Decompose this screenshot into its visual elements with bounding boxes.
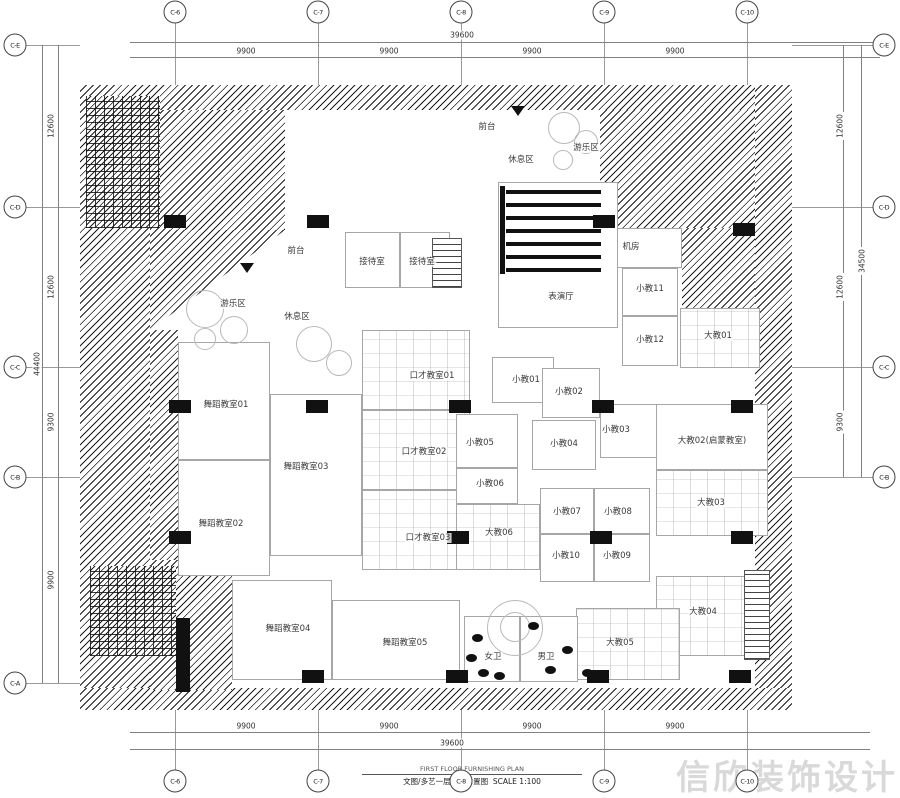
room-label: 小教09 — [602, 551, 632, 561]
grid-stem — [175, 710, 176, 770]
room-label: 表演厅 — [547, 292, 575, 302]
hatch-zone — [150, 110, 285, 230]
structure-core-block — [90, 566, 176, 656]
grid-bubble-bottom: C-9 — [593, 770, 616, 793]
dim-segment-top: 9900 — [663, 47, 686, 56]
room-label: 小教11 — [635, 284, 665, 294]
seating-bar — [506, 190, 601, 194]
room-label: 小教01 — [511, 375, 541, 385]
grid-stem — [747, 710, 748, 770]
room-label: 口才教室01 — [409, 371, 456, 381]
grid-bubble-top: C-9 — [593, 1, 616, 24]
decor-circle — [326, 350, 352, 376]
dim-segment-left: 9900 — [47, 568, 56, 591]
column-marker — [731, 531, 753, 544]
dim-total-bottom: 39600 — [438, 739, 466, 748]
room-label: 男卫 — [536, 652, 555, 662]
area-label: 游乐区 — [219, 299, 247, 309]
toilet-fixture — [494, 672, 505, 680]
dim-segment-bottom: 9900 — [234, 722, 257, 731]
room-label: 小教06 — [475, 479, 505, 489]
title-english: FIRST FLOOR FURNISHING PLAN — [362, 765, 582, 775]
room — [362, 490, 470, 570]
room-label: 口才教室03 — [405, 533, 452, 543]
grid-bubble-top: C-8 — [450, 1, 473, 24]
dim-segment-right: 12600 — [836, 112, 845, 140]
grid-bubble-top: C-7 — [307, 1, 330, 24]
hatch-zone — [80, 85, 792, 110]
column-marker — [169, 531, 191, 544]
area-label: 休息区 — [507, 155, 535, 165]
area-label: 游乐区 — [572, 143, 600, 153]
room-label: 舞蹈教室01 — [203, 400, 250, 410]
dim-segment-bottom: 9900 — [663, 722, 686, 731]
grid-bubble-right: C-C — [873, 356, 896, 379]
room — [362, 330, 470, 410]
dim-line — [130, 57, 880, 58]
dim-total-right: 34500 — [858, 247, 867, 275]
title-scale: SCALE 1:100 — [493, 777, 541, 786]
room-label: 大教01 — [703, 331, 733, 341]
column-marker — [446, 670, 468, 683]
room — [270, 394, 362, 556]
room-label: 舞蹈教室02 — [198, 519, 245, 529]
room-label: 小教03 — [601, 425, 631, 435]
grid-bubble-left: C-B — [4, 466, 27, 489]
room-label: 舞蹈教室05 — [382, 638, 429, 648]
entrance-arrow-icon — [511, 106, 525, 116]
column-marker — [302, 670, 324, 683]
room-label: 舞蹈教室04 — [265, 624, 312, 634]
dim-segment-left: 12600 — [47, 112, 56, 140]
hatch-zone — [600, 110, 755, 228]
room-label: 接待室 — [358, 257, 386, 267]
grid-stem — [604, 710, 605, 770]
grid-bubble-right: C-E — [873, 34, 896, 57]
grid-stem — [175, 23, 176, 85]
decor-circle — [553, 150, 573, 170]
room-label: 小教04 — [549, 439, 579, 449]
toilet-fixture — [478, 669, 489, 677]
toilet-fixture — [545, 666, 556, 674]
dim-line — [130, 749, 870, 750]
toilet-fixture — [466, 654, 477, 662]
grid-bubble-bottom: C-8 — [450, 770, 473, 793]
dim-total-left: 44400 — [33, 350, 42, 378]
dim-segment-left: 12600 — [47, 273, 56, 301]
decor-circle — [500, 612, 530, 642]
grid-bubble-right: C-B — [873, 466, 896, 489]
dim-segment-top: 9900 — [520, 47, 543, 56]
dim-segment-top: 9900 — [234, 47, 257, 56]
column-marker — [169, 400, 191, 413]
seating-bar — [506, 268, 601, 272]
toilet-fixture — [528, 622, 539, 630]
area-label: 前台 — [286, 246, 305, 256]
dim-total-top: 39600 — [448, 31, 476, 40]
room-label: 口才教室02 — [401, 447, 448, 457]
column-marker — [587, 670, 609, 683]
grid-bubble-right: C-D — [873, 196, 896, 219]
room-label: 小教10 — [551, 551, 581, 561]
room-label: 小教12 — [635, 335, 665, 345]
entrance-arrow-icon — [240, 263, 254, 273]
watermark: 信欣装饰设计 — [676, 750, 898, 798]
grid-stem — [26, 207, 80, 208]
room-label: 小教08 — [603, 507, 633, 517]
grid-stem — [26, 45, 80, 46]
room-label: 接待室 — [408, 257, 436, 267]
seating-bar — [506, 203, 601, 207]
grid-stem — [26, 683, 80, 684]
grid-stem — [747, 23, 748, 85]
dim-line — [58, 45, 59, 683]
stair-flight — [432, 238, 462, 288]
seating-bar — [506, 229, 601, 233]
dim-segment-top: 9900 — [377, 47, 400, 56]
room — [178, 460, 270, 576]
grid-bubble-bottom: C-6 — [164, 770, 187, 793]
grid-bubble-top: C-10 — [736, 1, 759, 24]
grid-stem — [318, 23, 319, 85]
decor-circle — [194, 328, 216, 350]
seating-bar — [506, 255, 601, 259]
dim-segment-right: 12600 — [836, 273, 845, 301]
grid-bubble-bottom: C-10 — [736, 770, 759, 793]
area-label: 前台 — [477, 122, 496, 132]
seating-bar — [506, 216, 601, 220]
hatch-zone — [682, 228, 755, 308]
dim-line — [130, 42, 880, 43]
room-label: 小教05 — [465, 438, 495, 448]
toilet-fixture — [472, 634, 483, 642]
room-label: 女卫 — [483, 652, 502, 662]
room-label: 小教02 — [554, 387, 584, 397]
room-label: 大教05 — [605, 638, 635, 648]
floor-plan-sheet: 信欣装饰设计 接待室接待室机房小教11小教12大教01表演厅口才教室01口才教室… — [0, 0, 900, 798]
toilet-fixture — [562, 646, 573, 654]
room-label: 舞蹈教室03 — [283, 462, 330, 472]
column-marker — [164, 215, 186, 228]
room-label: 机房 — [621, 242, 640, 252]
room-label: 大教03 — [696, 498, 726, 508]
column-marker — [307, 215, 329, 228]
dim-segment-right: 9300 — [836, 410, 845, 433]
dim-segment-left: 9300 — [47, 410, 56, 433]
grid-bubble-bottom: C-7 — [307, 770, 330, 793]
decor-circle — [220, 316, 248, 344]
grid-bubble-left: C-A — [4, 672, 27, 695]
column-marker — [593, 215, 615, 228]
column-marker — [449, 400, 471, 413]
column-marker — [729, 670, 751, 683]
room-label: 小教07 — [552, 507, 582, 517]
grid-bubble-left: C-E — [4, 34, 27, 57]
decor-circle — [186, 290, 224, 328]
dim-segment-bottom: 9900 — [520, 722, 543, 731]
grid-stem — [26, 477, 80, 478]
column-marker — [731, 400, 753, 413]
grid-stem — [318, 710, 319, 770]
stair-flight — [744, 570, 770, 660]
grid-bubble-top: C-6 — [164, 1, 187, 24]
column-marker — [590, 531, 612, 544]
seating-bar — [500, 186, 505, 274]
grid-stem — [604, 23, 605, 85]
area-label: 休息区 — [283, 312, 311, 322]
dim-line — [42, 45, 43, 683]
grid-stem — [792, 477, 873, 478]
column-marker — [592, 400, 614, 413]
dim-segment-bottom: 9900 — [377, 722, 400, 731]
title-chinese-text: 文图/多艺一层平面布置图 — [403, 777, 488, 786]
seating-bar — [506, 242, 601, 246]
room-label: 大教06 — [484, 528, 514, 538]
dim-line — [130, 732, 870, 733]
seating-bar — [176, 618, 190, 692]
column-marker — [306, 400, 328, 413]
grid-bubble-left: C-C — [4, 356, 27, 379]
column-marker — [733, 223, 755, 236]
structure-core-block — [86, 96, 160, 228]
room-label: 大教02(启蒙教室) — [677, 436, 747, 446]
grid-bubble-left: C-D — [4, 196, 27, 219]
room-label: 大教04 — [688, 607, 718, 617]
